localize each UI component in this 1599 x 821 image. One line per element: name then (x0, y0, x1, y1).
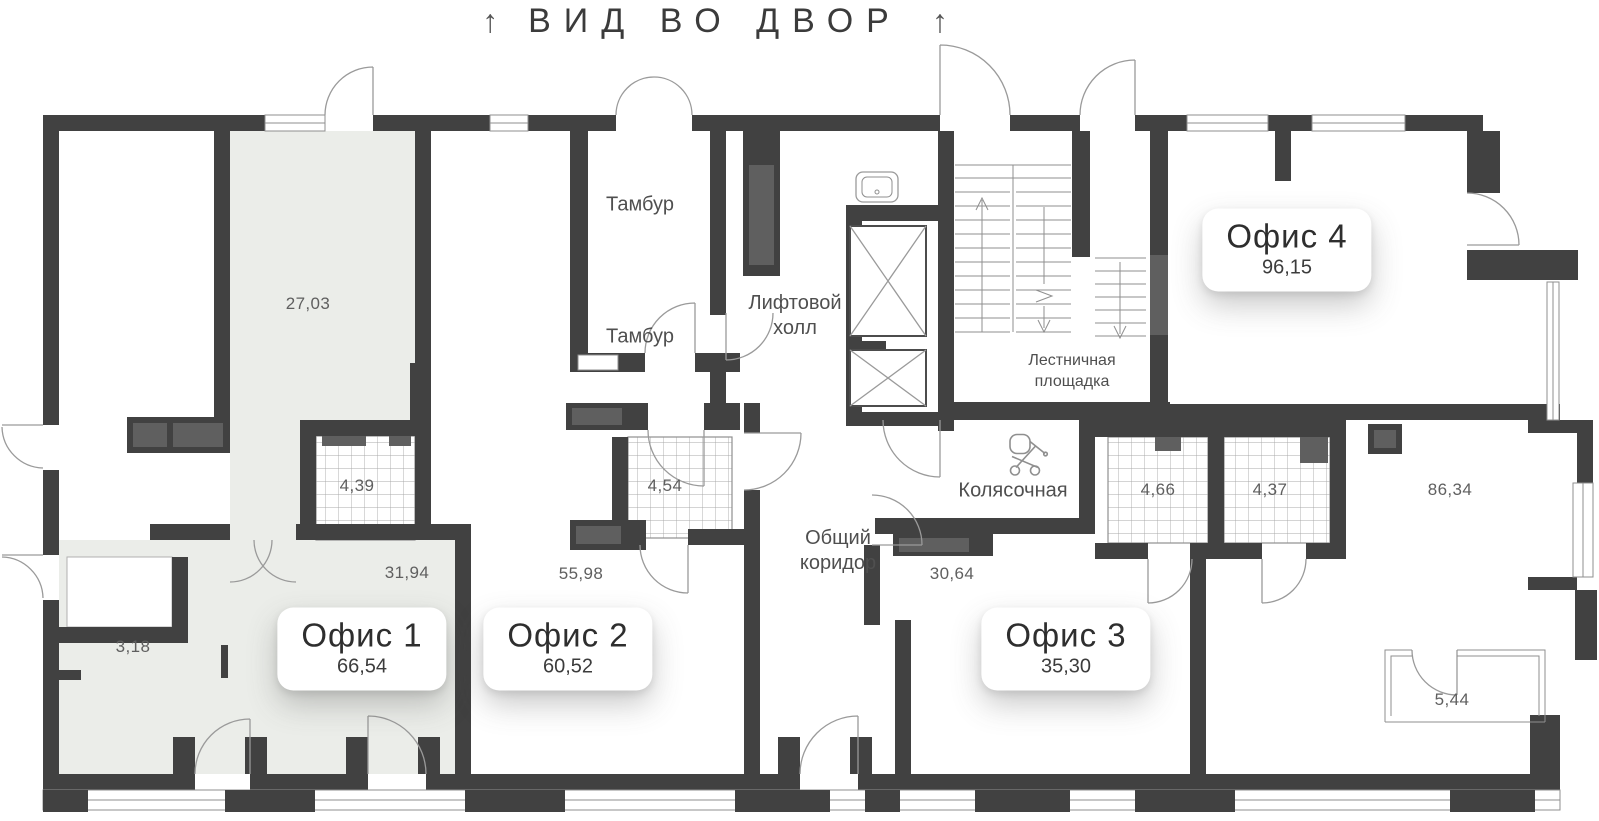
elevator-hall-line1: Лифтовой (748, 291, 841, 316)
area-bath-left: 4,66 (1141, 480, 1176, 500)
office3-name: Офис 3 (1005, 617, 1126, 655)
area-office1-room: 27,03 (286, 294, 331, 314)
balcony-outline (1385, 650, 1545, 722)
area-office2-bath: 4,54 (648, 476, 683, 496)
area-office3-hall: 30,64 (930, 564, 975, 584)
office2-badge[interactable]: Офис 2 60,52 (483, 608, 652, 691)
view-direction-title: ↑ ВИД ВО ДВОР ↑ (0, 0, 1430, 42)
stairs (955, 165, 1146, 338)
room-label-stair-landing: Лестничная площадка (1028, 351, 1115, 393)
room-label-vestibule-lower: Тамбур (606, 325, 674, 350)
elevator-shafts (850, 226, 926, 406)
floor-plan-svg (0, 0, 1599, 821)
area-office1-bath: 4,39 (340, 476, 375, 496)
room-label-common-corridor: Общий коридор (800, 526, 876, 576)
area-office1-loggia: 3,18 (116, 637, 151, 657)
common-corridor-line2: коридор (800, 551, 876, 576)
stair-direction-arrows (976, 198, 1126, 338)
office1-area: 66,54 (301, 656, 422, 679)
office4-name: Офис 4 (1226, 218, 1347, 256)
office3-area: 35,30 (1005, 656, 1126, 679)
title-text: ВИД ВО ДВОР (528, 2, 902, 41)
floor-plan-page: ↑ ВИД ВО ДВОР ↑ Тамбур Тамбур Лифтовой х… (0, 0, 1599, 821)
area-balcony: 5,44 (1435, 690, 1470, 710)
area-bath-right: 4,37 (1253, 480, 1288, 500)
office4-badge[interactable]: Офис 4 96,15 (1202, 209, 1371, 292)
common-corridor-line1: Общий (800, 526, 876, 551)
area-office2-main: 55,98 (559, 564, 604, 584)
office1-name: Офис 1 (301, 617, 422, 655)
room-label-elevator-hall: Лифтовой холл (748, 291, 841, 341)
stair-landing-line2: площадка (1028, 372, 1115, 393)
sink-icon (856, 172, 898, 202)
office2-area: 60,52 (507, 656, 628, 679)
stair-landing-line1: Лестничная (1028, 351, 1115, 372)
office4-area: 96,15 (1226, 257, 1347, 280)
office2-name: Офис 2 (507, 617, 628, 655)
area-office1-hall: 31,94 (385, 563, 430, 583)
elevator-hall-line2: холл (748, 316, 841, 341)
area-office4-hall: 86,34 (1428, 480, 1473, 500)
room-label-vestibule-upper: Тамбур (606, 193, 674, 218)
stroller-icon (1002, 430, 1050, 483)
arrow-up-icon-right: ↑ (932, 3, 948, 40)
office1-badge[interactable]: Офис 1 66,54 (277, 608, 446, 691)
arrow-up-icon-left: ↑ (482, 3, 498, 40)
office3-badge[interactable]: Офис 3 35,30 (981, 608, 1150, 691)
